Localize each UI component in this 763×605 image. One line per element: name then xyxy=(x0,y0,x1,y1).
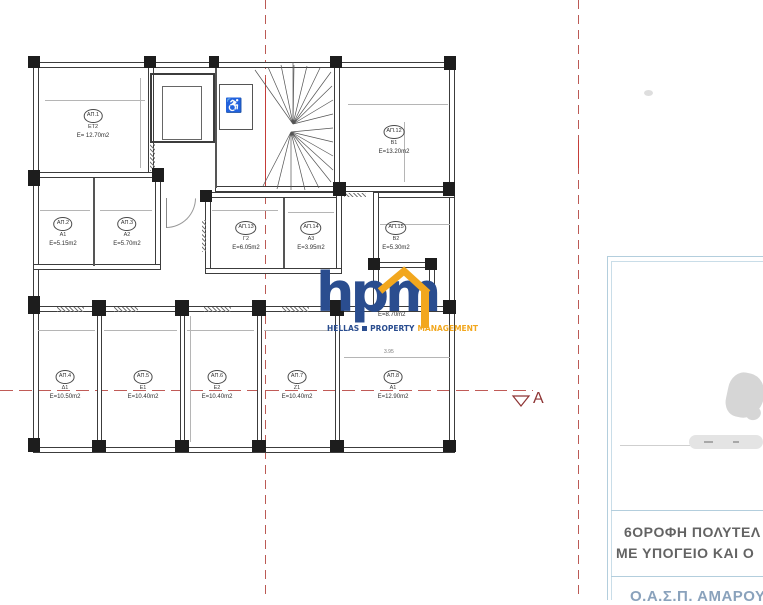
panel-divider-2 xyxy=(611,576,763,577)
column-marker xyxy=(443,440,456,452)
window-hatch xyxy=(204,307,231,312)
room-code: Β1 xyxy=(379,141,410,147)
logo-word-management: MANAGEMENT xyxy=(417,324,478,333)
wall xyxy=(180,312,185,447)
panel-pill-mark xyxy=(704,441,713,443)
panel-pill-shape xyxy=(689,435,763,449)
wall xyxy=(257,312,262,447)
room-code: ΕΤ2 xyxy=(77,125,110,131)
room-number-circle: ΑΠ.8 xyxy=(383,370,402,384)
column-marker xyxy=(152,168,164,182)
logo-word-hellas: HELLAS xyxy=(327,324,359,333)
room-code: Α1 xyxy=(49,233,77,239)
window-hatch xyxy=(150,144,155,171)
column-marker xyxy=(330,56,342,68)
window-hatch xyxy=(114,307,138,312)
wall xyxy=(97,312,102,447)
room-number-circle: ΑΠ.1 xyxy=(84,109,103,123)
wall xyxy=(449,62,455,453)
room-number-circle: ΑΠ.14 xyxy=(300,221,321,235)
dimension-line xyxy=(40,210,90,211)
room-area: E=10.40m2 xyxy=(282,394,313,400)
dimension-line xyxy=(140,78,141,168)
dimension-value: 3.95 xyxy=(384,349,394,355)
dimension-line xyxy=(45,100,145,101)
room-number-circle: ΑΠ.7 xyxy=(287,370,306,384)
column-marker xyxy=(28,56,40,68)
wall xyxy=(33,62,455,68)
room-number-circle: ΑΠ.15 xyxy=(385,221,406,235)
dimension-line xyxy=(344,357,450,358)
room-code: Ε2 xyxy=(202,386,233,392)
room-area: E=12.90m2 xyxy=(378,394,409,400)
room-number-circle: ΑΠ.3 xyxy=(118,217,137,231)
room-number-circle: ΑΠ.12 xyxy=(383,125,404,139)
column-marker xyxy=(28,438,40,452)
room-number-circle: ΑΠ.13 xyxy=(235,221,256,235)
dimension-line xyxy=(288,212,334,213)
column-marker xyxy=(330,440,344,452)
column-marker xyxy=(92,300,106,316)
column-marker xyxy=(175,440,189,452)
room-code: Ε1 xyxy=(128,386,159,392)
column-marker xyxy=(443,182,455,196)
panel-divider-1 xyxy=(611,510,763,511)
room-area: E=10.40m2 xyxy=(128,394,159,400)
window-hatch xyxy=(202,220,206,252)
room-label: ΑΠ.1 ΕΤ2 E= 12.70m2 xyxy=(77,104,110,139)
panel-thin-line xyxy=(620,445,690,446)
room-label: ΑΠ.13 Γ2 E=6.05m2 xyxy=(232,216,260,251)
window-hatch xyxy=(282,307,309,312)
dimension-line xyxy=(100,210,152,211)
dimension-line xyxy=(104,330,177,331)
wall xyxy=(33,264,161,270)
wall xyxy=(283,198,285,268)
room-label: ΑΠ.2 Α1 E=5.15m2 xyxy=(49,212,77,247)
panel-pill-mark xyxy=(733,441,739,443)
room-label: ΑΠ.14 Α3 E=3.95m2 xyxy=(297,216,325,251)
room-area: E=5.30m2 xyxy=(382,245,410,251)
column-marker xyxy=(252,440,266,452)
column-marker xyxy=(175,300,189,316)
column-marker xyxy=(200,190,212,202)
dimension-line xyxy=(348,104,448,105)
wheelchair-accessibility-icon: ♿ xyxy=(225,97,242,114)
panel-partial-bottom-line: Ο.Α.Σ.Π. ΑΜΑΡΟΥΣΙΟΥ xyxy=(630,588,763,605)
staircase-treads xyxy=(253,62,335,192)
panel-border-top-inner xyxy=(611,261,763,262)
wall xyxy=(205,192,342,198)
room-label: ΑΠ.12 Β1 E=13.20m2 xyxy=(379,120,410,155)
wall xyxy=(93,178,95,266)
panel-border-left-outer xyxy=(607,256,608,600)
section-marker-letter: A xyxy=(533,390,544,408)
room-number-circle: ΑΠ.2 xyxy=(54,217,73,231)
dimension-line xyxy=(187,330,254,331)
room-area: E=6.05m2 xyxy=(232,245,260,251)
window-hatch xyxy=(344,193,366,197)
room-area: E= 12.70m2 xyxy=(77,133,110,139)
dimension-line xyxy=(264,330,332,331)
column-marker xyxy=(444,56,456,70)
room-code: Α3 xyxy=(297,237,325,243)
room-code: Α2 xyxy=(113,233,141,239)
column-marker xyxy=(28,170,40,186)
room-code: Γ2 xyxy=(232,237,260,243)
logo-subtitle: HELLAS PROPERTY MANAGEMENT xyxy=(327,324,478,333)
room-area: E=10.40m2 xyxy=(202,394,233,400)
wall xyxy=(215,62,217,188)
column-marker xyxy=(333,182,346,196)
door-leaf xyxy=(166,198,167,228)
column-marker xyxy=(252,300,266,316)
room-label: ΑΠ.6 Ε2 E=10.40m2 xyxy=(202,365,233,400)
column-marker xyxy=(209,56,219,68)
room-area: E=3.95m2 xyxy=(297,245,325,251)
axis-line-vertical-right xyxy=(578,0,579,600)
room-area: E=5.70m2 xyxy=(113,241,141,247)
column-marker xyxy=(144,56,156,68)
gray-smudge xyxy=(644,90,653,96)
room-code: Α1 xyxy=(378,386,409,392)
logo-word-property: PROPERTY xyxy=(370,324,414,333)
column-marker xyxy=(92,440,106,452)
room-area: E=10.50m2 xyxy=(50,394,81,400)
panel-border-top xyxy=(607,256,763,257)
floor-plan-page: { "plan": { "rooms": [ {"circle":"ΑΠ.1",… xyxy=(0,0,763,600)
wall xyxy=(155,172,161,270)
column-marker xyxy=(28,296,40,314)
room-label: ΑΠ.4 Δ1 E=10.50m2 xyxy=(50,365,81,400)
door-swing-arc xyxy=(166,198,196,228)
dimension-line xyxy=(38,330,95,331)
room-code: Ζ1 xyxy=(282,386,313,392)
panel-title-line-1: 6ΟΡΟΦΗ ΠΟΛΥΤΕΛ xyxy=(624,524,761,540)
dimension-line xyxy=(190,316,191,442)
room-label: ΑΠ.7 Ζ1 E=10.40m2 xyxy=(282,365,313,400)
window-hatch xyxy=(57,307,84,312)
room-label: ΑΠ.15 Β2 E=5.30m2 xyxy=(382,216,410,251)
wall xyxy=(33,62,39,453)
room-number-circle: ΑΠ.5 xyxy=(133,370,152,384)
room-code: Δ1 xyxy=(50,386,81,392)
column-marker xyxy=(443,300,456,314)
room-label: ΑΠ.5 Ε1 E=10.40m2 xyxy=(128,365,159,400)
panel-title-line-2: ΜΕ ΥΠΟΓΕΙΟ ΚΑΙ Ο xyxy=(616,545,754,561)
room-number-circle: ΑΠ.4 xyxy=(55,370,74,384)
logo-square-icon xyxy=(362,326,367,331)
room-area: E=13.20m2 xyxy=(379,149,410,155)
room-area: E=5.15m2 xyxy=(49,241,77,247)
room-label: ΑΠ.3 Α2 E=5.70m2 xyxy=(113,212,141,247)
axis-line-vertical-right-solid xyxy=(578,140,579,168)
logo-house-icon xyxy=(370,258,436,334)
wall xyxy=(33,172,161,178)
room-number-circle: ΑΠ.6 xyxy=(207,370,226,384)
dimension-line xyxy=(212,210,278,211)
room-code: Β2 xyxy=(382,237,410,243)
panel-border-left-inner xyxy=(611,261,612,600)
wall xyxy=(334,186,455,192)
elevator-car xyxy=(162,86,202,140)
room-label: ΑΠ.8 Α1 E=12.90m2 xyxy=(378,365,409,400)
